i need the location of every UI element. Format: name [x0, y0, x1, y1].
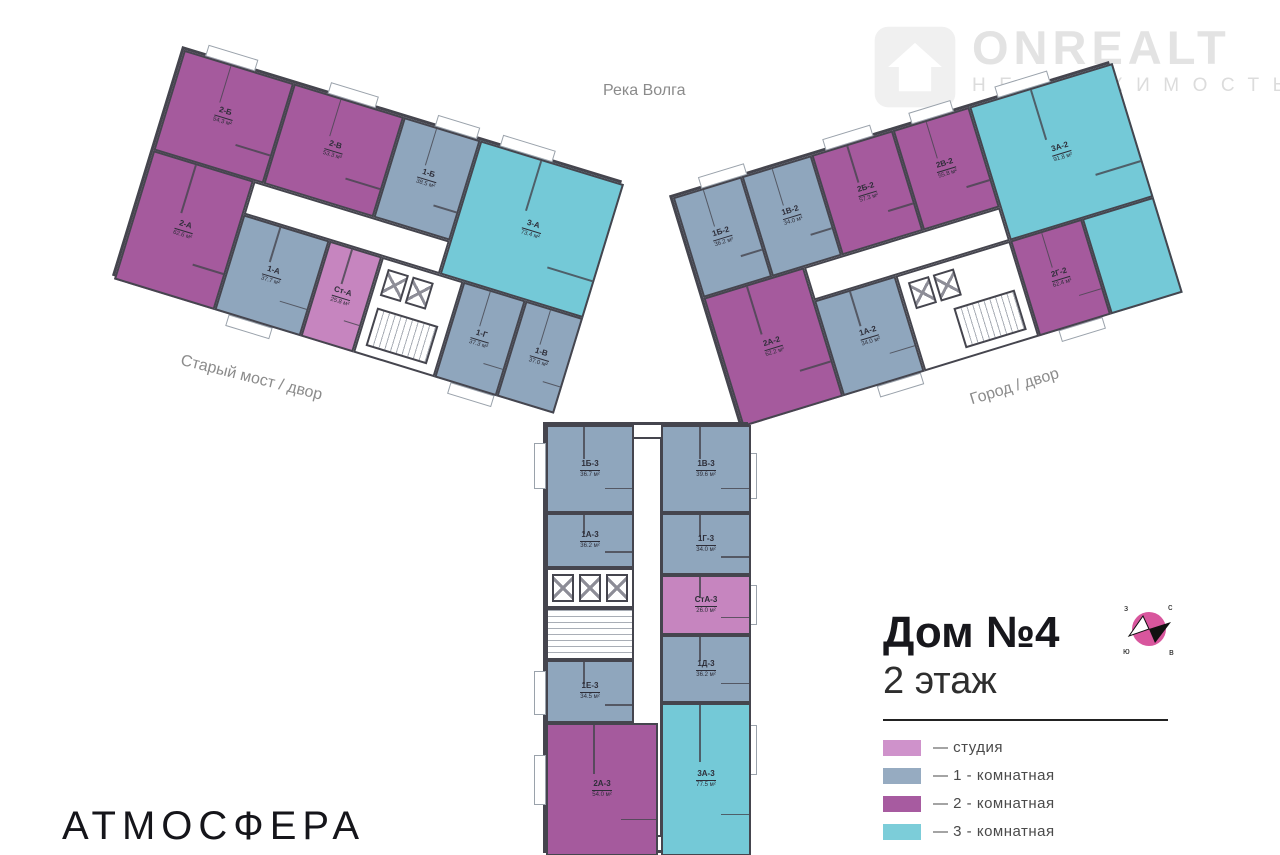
legend-label: — 2 - комнатная: [933, 795, 1055, 812]
apartment-cell[interactable]: 1Д-336.2 м²: [661, 635, 751, 703]
balcony: [534, 443, 546, 489]
legend-swatch-1-room: [883, 768, 921, 784]
legend-swatch-studio: [883, 740, 921, 756]
elevator-shaft: [380, 269, 409, 302]
floor-plan-building-right: 1Б-236.2 м² 1В-234.0 м² 2Б-257.3 м² 2В-2…: [669, 61, 1179, 425]
stairwell: [953, 290, 1026, 349]
legend-item-2-room: — 2 - комнатная: [883, 795, 1175, 812]
balcony: [534, 755, 546, 805]
legend-swatch-3-room: [883, 824, 921, 840]
label-old-bridge-yard: Старый мост / двор: [179, 352, 324, 405]
legend-item-1-room: — 1 - комнатная: [883, 767, 1175, 784]
legend-label: — 3 - комнатная: [933, 823, 1055, 840]
label-city-yard: Город / двор: [968, 365, 1061, 409]
floor-plan-building-bottom: 1Б-336.7 м² 1А-336.2 м² 1Е-334.5 м² 2А-3…: [543, 422, 748, 853]
svg-text:в: в: [1169, 647, 1174, 657]
onrealt-name: ONREALT: [972, 24, 1280, 71]
legend-item-3-room: — 3 - комнатная: [883, 823, 1175, 840]
legend-swatch-2-room: [883, 796, 921, 812]
apartment-cell[interactable]: 1Г-334.0 м²: [661, 513, 751, 575]
apartment-cell[interactable]: СтА-326.0 м²: [661, 575, 751, 635]
elevator-shaft: [908, 276, 937, 309]
apartment-cell[interactable]: 2А-354.0 м²: [546, 723, 658, 855]
stairwell: [366, 307, 439, 364]
apartment-cell[interactable]: 1А-336.2 м²: [546, 513, 634, 568]
elevator-shaft: [933, 268, 962, 301]
svg-text:с: с: [1168, 602, 1173, 612]
elevator-core: [546, 568, 634, 608]
elevator-shaft: [606, 574, 628, 602]
legend-label: — студия: [933, 739, 1003, 756]
divider: [883, 719, 1168, 721]
apartment-cell[interactable]: 1Е-334.5 м²: [546, 660, 634, 723]
elevator-shaft: [405, 277, 434, 310]
label-river: Река Волга: [603, 82, 686, 100]
house-icon: [872, 24, 958, 110]
floor-plan-page: ONREALT НЕДВИЖИМОСТЬ Река Волга Старый м…: [0, 0, 1280, 855]
svg-text:ю: ю: [1123, 646, 1130, 656]
stairwell: [546, 608, 634, 660]
floor-title: 2 этаж: [883, 660, 1175, 703]
legend-item-studio: — студия: [883, 739, 1175, 756]
apartment-cell[interactable]: 3А-377.5 м²: [661, 703, 751, 855]
elevator-shaft: [579, 574, 601, 602]
svg-text:з: з: [1124, 603, 1128, 613]
balcony: [534, 671, 546, 715]
apartment-cell[interactable]: 1Б-336.7 м²: [546, 425, 634, 513]
atmosfera-logo: АТМОСФЕРА: [62, 804, 365, 849]
elevator-shaft: [552, 574, 574, 602]
apartment-cell[interactable]: 1В-339.6 м²: [661, 425, 751, 513]
compass-icon: з с ю в: [1118, 598, 1180, 660]
legend-label: — 1 - комнатная: [933, 767, 1055, 784]
